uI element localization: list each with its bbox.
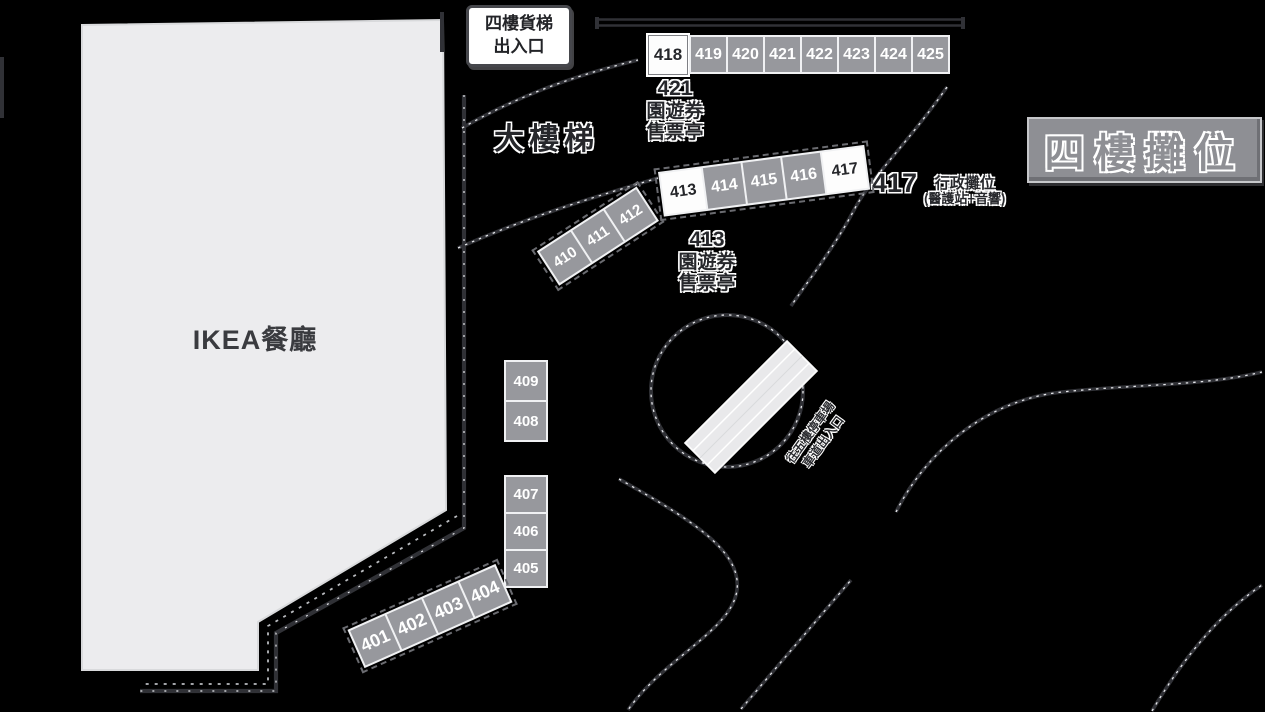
booth-408: 408 — [506, 402, 546, 440]
booth-stack-upper: 409 408 — [504, 360, 548, 442]
floor-map: IKEA餐廳 四樓貨梯 出入口 大樓梯 四樓攤位 421 園遊券 售票亭 413… — [0, 0, 1265, 712]
kiosk-413-label: 413 園遊券 售票亭 — [657, 228, 757, 294]
booth-413: 413 — [660, 168, 706, 214]
admin-417-subtitle: (醫護站+音響) — [924, 192, 1005, 207]
admin-417-number: 417 — [872, 170, 917, 197]
booth-417: 417 — [822, 147, 868, 193]
booth-406: 406 — [506, 514, 546, 549]
kiosk-413-number: 413 — [657, 228, 757, 252]
booth-420: 420 — [728, 37, 763, 72]
admin-417-title: 行政攤位 — [924, 175, 1005, 192]
booth-424: 424 — [876, 37, 911, 72]
booth-416: 416 — [782, 153, 825, 199]
kiosk-421-label: 421 園遊券 售票亭 — [625, 77, 725, 143]
booth-419: 419 — [691, 37, 726, 72]
booth-row-top: 419 420 421 422 423 424 425 — [689, 35, 950, 74]
kiosk-421-number: 421 — [625, 77, 725, 101]
kiosk-421-line1: 園遊券 — [625, 101, 725, 122]
kiosk-413-line1: 園遊券 — [657, 252, 757, 273]
grand-staircase-label: 大樓梯 — [494, 114, 599, 158]
booth-414: 414 — [703, 163, 746, 209]
booth-stack-lower: 407 406 405 — [504, 475, 548, 588]
booth-425: 425 — [913, 37, 948, 72]
freight-elevator-sign: 四樓貨梯 出入口 — [466, 5, 572, 67]
booth-418: 418 — [646, 33, 690, 77]
booth-421: 421 — [765, 37, 800, 72]
booth-405: 405 — [506, 551, 546, 586]
kiosk-413-line2: 售票亭 — [657, 273, 757, 294]
booth-409: 409 — [506, 362, 546, 400]
booth-417-admin-label: 417 行政攤位 (醫護站+音響) — [872, 170, 1005, 207]
booth-422: 422 — [802, 37, 837, 72]
freight-elevator-line1: 四樓貨梯 — [485, 14, 553, 33]
ikea-restaurant-label: IKEA餐廳 — [150, 318, 360, 357]
freight-elevator-line2: 出入口 — [494, 37, 545, 56]
booth-423: 423 — [839, 37, 874, 72]
booth-407: 407 — [506, 477, 546, 512]
admin-417-text: 行政攤位 (醫護站+音響) — [924, 175, 1005, 207]
freight-elevator-sign-text: 四樓貨梯 出入口 — [485, 13, 553, 59]
kiosk-421-line2: 售票亭 — [625, 122, 725, 143]
floor-booths-sign: 四樓攤位 — [1027, 117, 1262, 183]
booth-415: 415 — [743, 158, 786, 204]
